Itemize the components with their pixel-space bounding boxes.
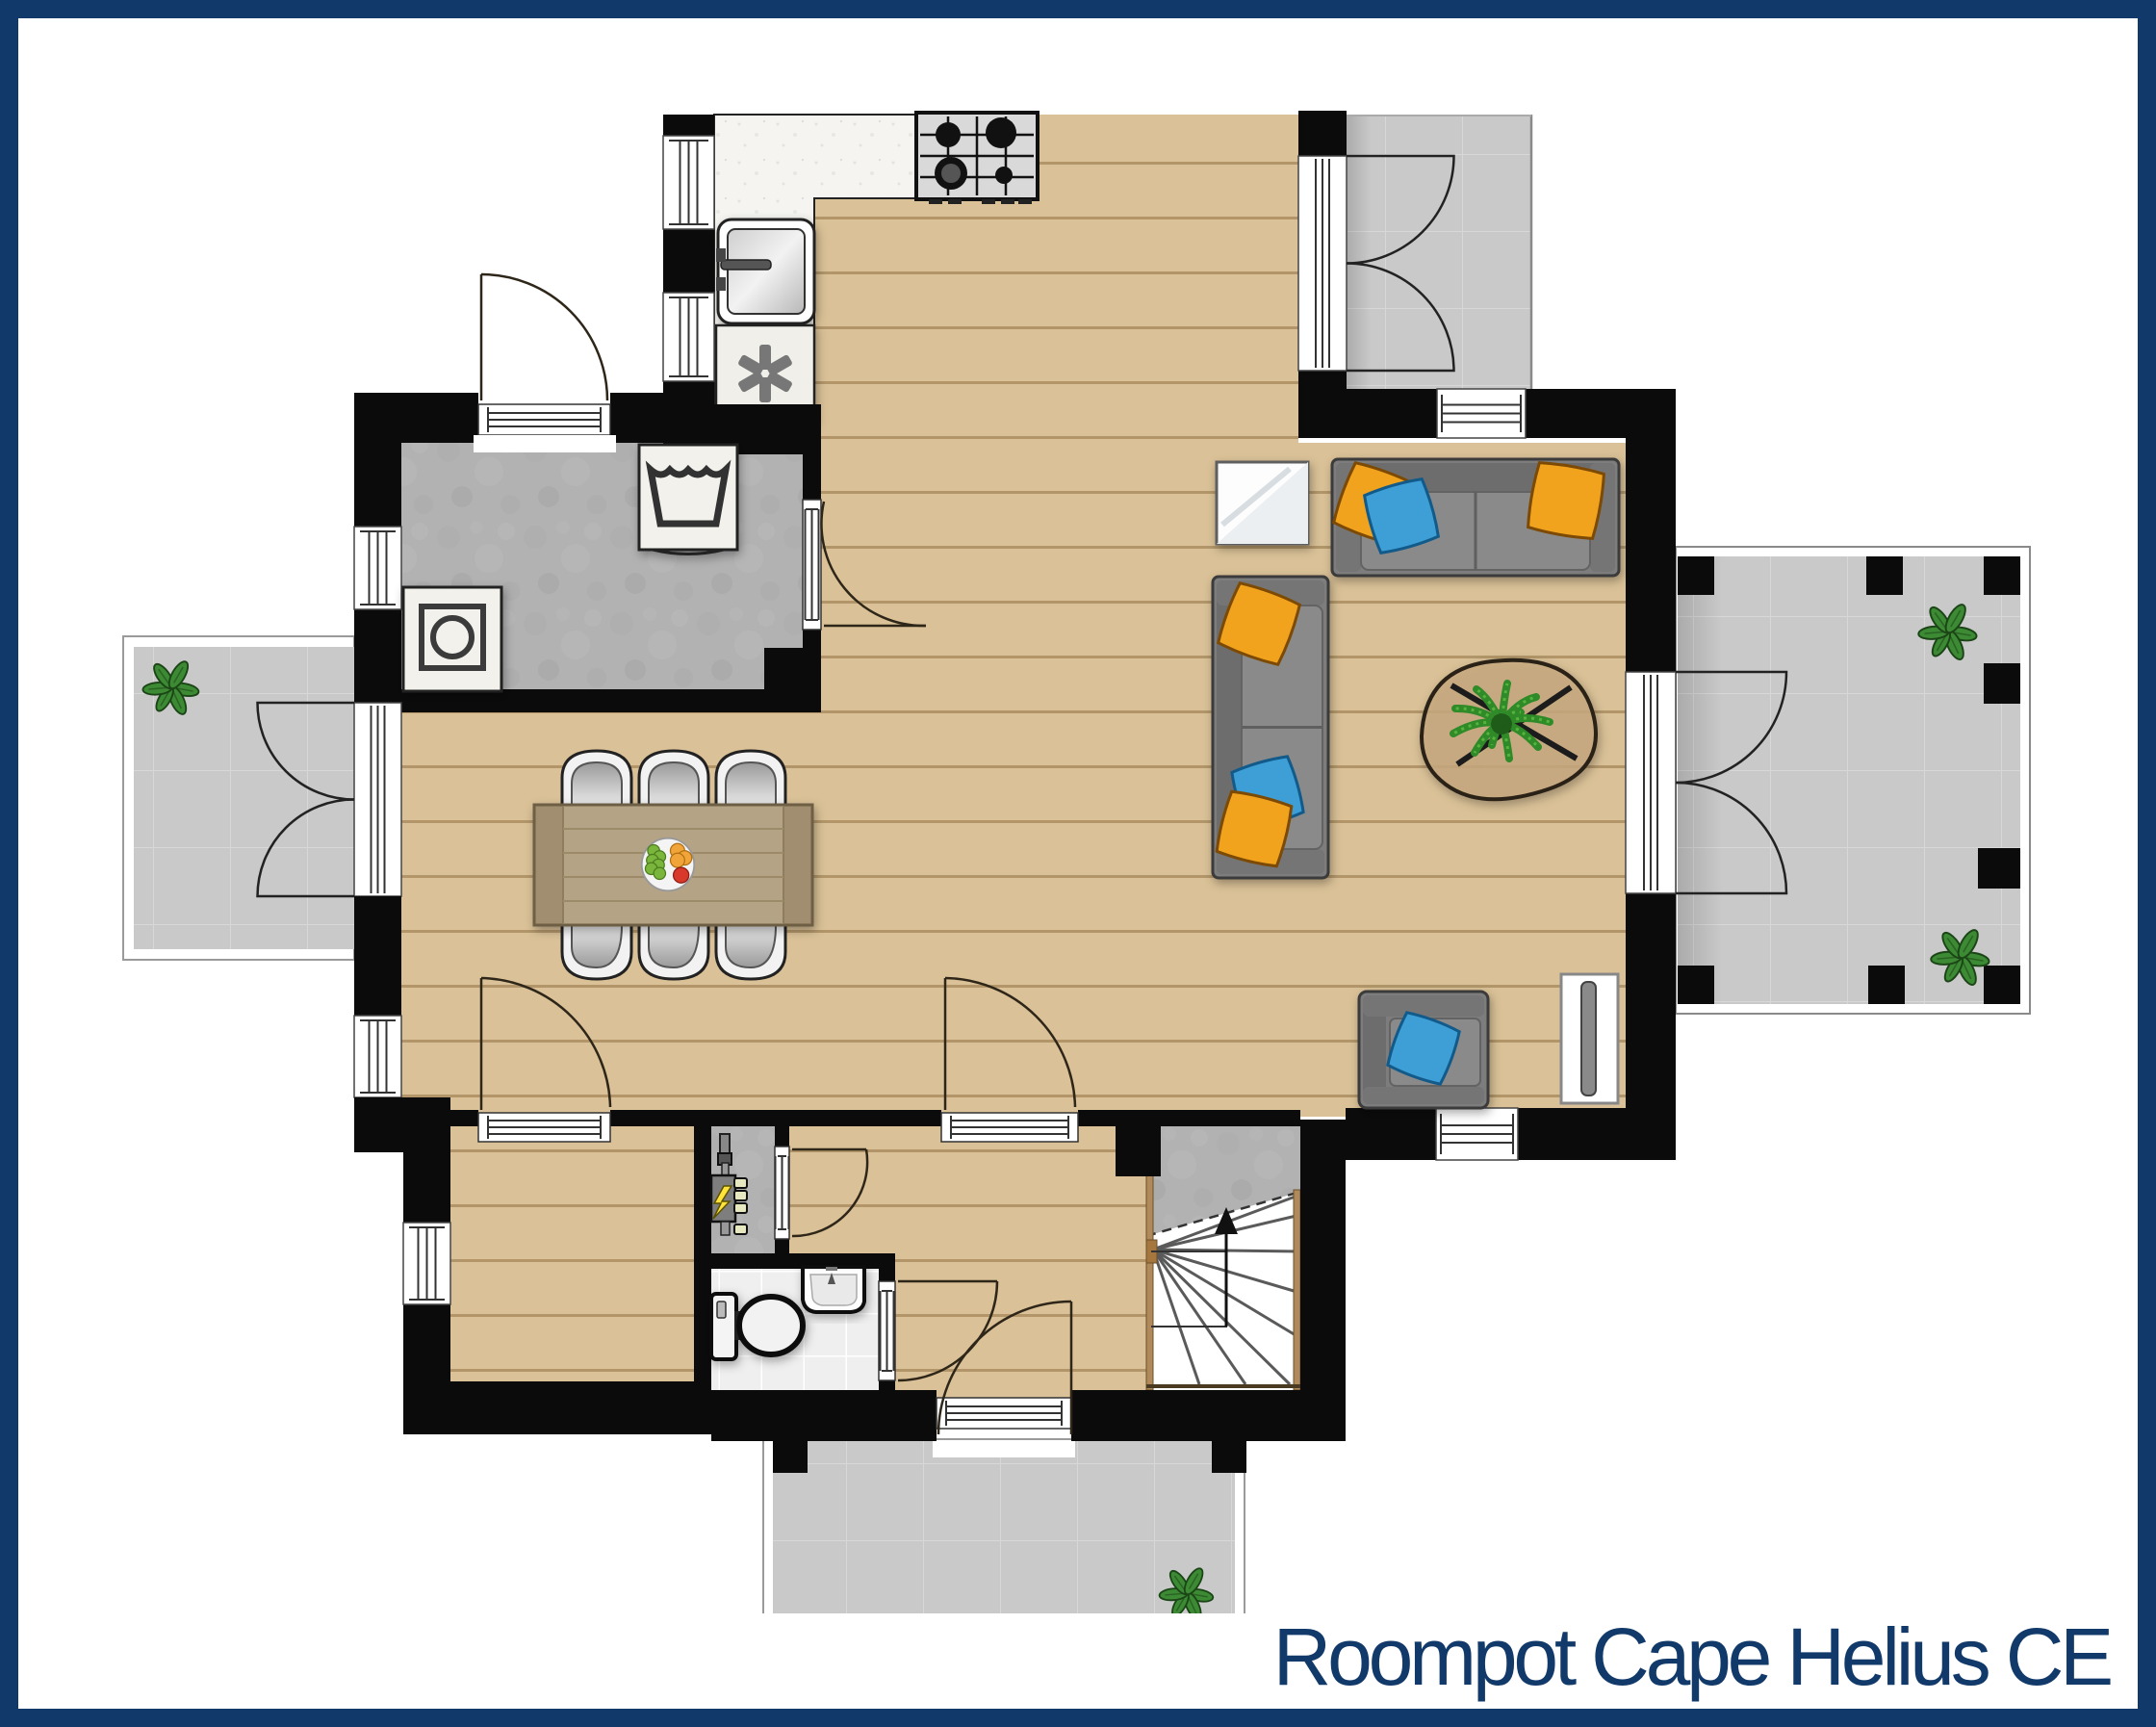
svg-text:Roompot Cape Helius CE: Roompot Cape Helius CE: [1273, 1611, 2112, 1702]
